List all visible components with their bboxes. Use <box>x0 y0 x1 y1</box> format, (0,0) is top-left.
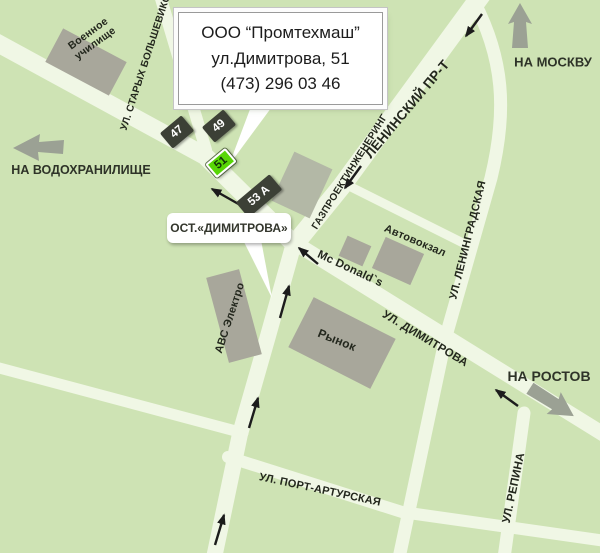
arrow-to-moscow-icon <box>508 3 532 48</box>
company-info-box: ООО “Промтехмаш” ул.Димитрова, 51 (473) … <box>178 12 383 105</box>
road-unnamed-west <box>0 366 243 433</box>
bus-stop-label: ОСТ.«ДИМИТРОВА» <box>170 221 287 235</box>
city-map: УЛ. СТАРЫХ БОЛЬШЕВИКОВ ЛЕНИНСКИЙ ПР-Т ГА… <box>0 0 600 553</box>
bus-stop-pointer <box>243 240 272 298</box>
direction-label-reservoir: НА ВОДОХРАНИЛИЩЕ <box>11 163 150 177</box>
arrow-to-reservoir-icon <box>13 134 64 161</box>
company-name: ООО “Промтехмаш” <box>179 20 382 46</box>
bus-stop-callout: ОСТ.«ДИМИТРОВА» <box>167 213 291 243</box>
company-phone: (473) 296 03 46 <box>179 71 382 97</box>
info-box-pointer <box>229 104 274 165</box>
company-address: ул.Димитрова, 51 <box>179 46 382 72</box>
direction-label-moscow: НА МОСКВУ <box>514 55 592 70</box>
direction-label-rostov: НА РОСТОВ <box>507 368 590 384</box>
direction-arrow-rostov-icon <box>496 390 518 406</box>
